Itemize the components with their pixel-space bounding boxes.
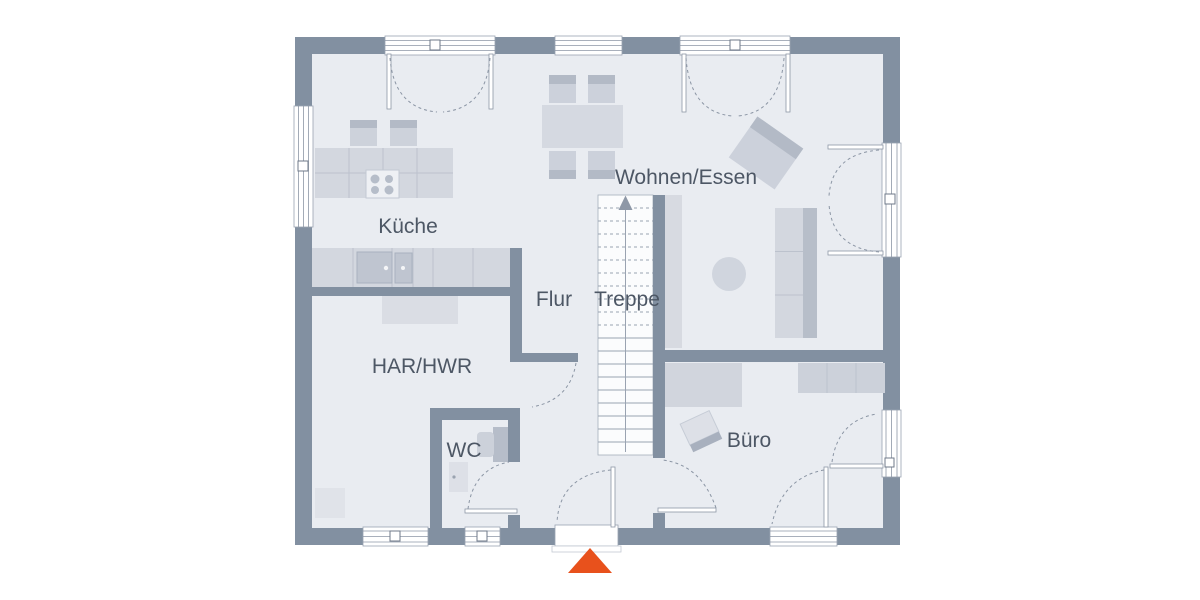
door-leaf xyxy=(611,467,615,527)
kitchen-counter xyxy=(315,148,453,198)
dining-chair xyxy=(588,151,615,179)
window-bottom-har xyxy=(363,527,428,546)
bar-stool xyxy=(390,120,417,146)
door-leaf xyxy=(658,508,716,512)
room-label-wc: WC xyxy=(447,439,482,462)
window-left xyxy=(294,106,313,227)
window-handle-icon xyxy=(885,458,894,467)
wall-stairwell-stub xyxy=(653,513,665,528)
floor-plan-page: Küche Wohnen/Essen Flur Treppe HAR/HWR W… xyxy=(0,0,1200,600)
wall-kitchen-utility xyxy=(312,287,522,296)
window-handle-icon xyxy=(298,161,308,171)
door-leaf xyxy=(682,54,686,112)
wc-sink-icon xyxy=(449,462,468,492)
storage-block xyxy=(315,488,345,518)
wall-utility-top xyxy=(510,353,578,362)
window-top-center xyxy=(555,36,622,55)
window-handle-icon xyxy=(390,531,400,541)
window-leaf xyxy=(824,467,828,527)
door-leaf xyxy=(828,251,883,255)
wall-wc-right-stub xyxy=(508,515,520,528)
room-label-har-hwr: HAR/HWR xyxy=(372,355,472,378)
room-label-flur: Flur xyxy=(536,288,572,311)
room-label-kueche: Küche xyxy=(378,215,438,238)
coffee-table xyxy=(712,257,746,291)
wall-wc-left xyxy=(430,408,442,528)
staircase xyxy=(598,195,653,455)
window-handle-icon xyxy=(477,531,487,541)
door-handle-icon xyxy=(730,40,740,50)
wall-wc-top xyxy=(430,408,520,420)
sofa xyxy=(775,208,817,338)
room-label-buero: Büro xyxy=(727,429,771,452)
shelf-unit xyxy=(798,363,885,393)
cooktop-icon xyxy=(366,170,399,198)
door-handle-icon xyxy=(430,40,440,50)
door-leaf xyxy=(465,509,517,513)
wall-hall-left xyxy=(510,248,522,362)
bar-stool xyxy=(350,120,377,146)
wall-living-office xyxy=(653,350,883,362)
wall-wc-right xyxy=(508,408,520,462)
door-leaf xyxy=(828,145,883,149)
window-bottom-wc xyxy=(465,527,500,546)
washer-icon xyxy=(382,296,458,324)
floor-plan-canvas: Küche Wohnen/Essen Flur Treppe HAR/HWR W… xyxy=(0,0,1200,600)
door-leaf xyxy=(387,54,391,109)
entrance-sill xyxy=(552,546,621,552)
door-handle-icon xyxy=(885,194,895,204)
wall-stairwell xyxy=(653,195,665,458)
room-label-wohnen-essen: Wohnen/Essen xyxy=(615,166,757,189)
room-label-treppe: Treppe xyxy=(594,288,660,311)
dining-table xyxy=(542,105,623,148)
dining-chair xyxy=(588,75,615,103)
desk xyxy=(665,363,742,407)
window-leaf xyxy=(830,464,883,468)
dining-chair xyxy=(549,75,576,103)
kitchen-lower-counter xyxy=(312,248,512,287)
door-leaf xyxy=(786,54,790,112)
dining-chair xyxy=(549,151,576,179)
door-leaf xyxy=(489,54,493,109)
